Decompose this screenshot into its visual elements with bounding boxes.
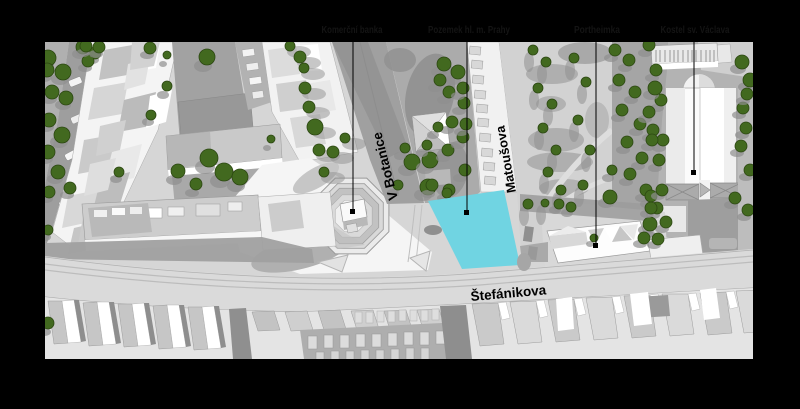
svg-text:Kostel sv. Václava: Kostel sv. Václava [661, 25, 730, 36]
svg-text:Pozemek hl. m. Prahy: Pozemek hl. m. Prahy [428, 25, 510, 36]
svg-text:Portheimka: Portheimka [574, 25, 620, 36]
svg-text:Komerční banka: Komerční banka [322, 25, 383, 36]
